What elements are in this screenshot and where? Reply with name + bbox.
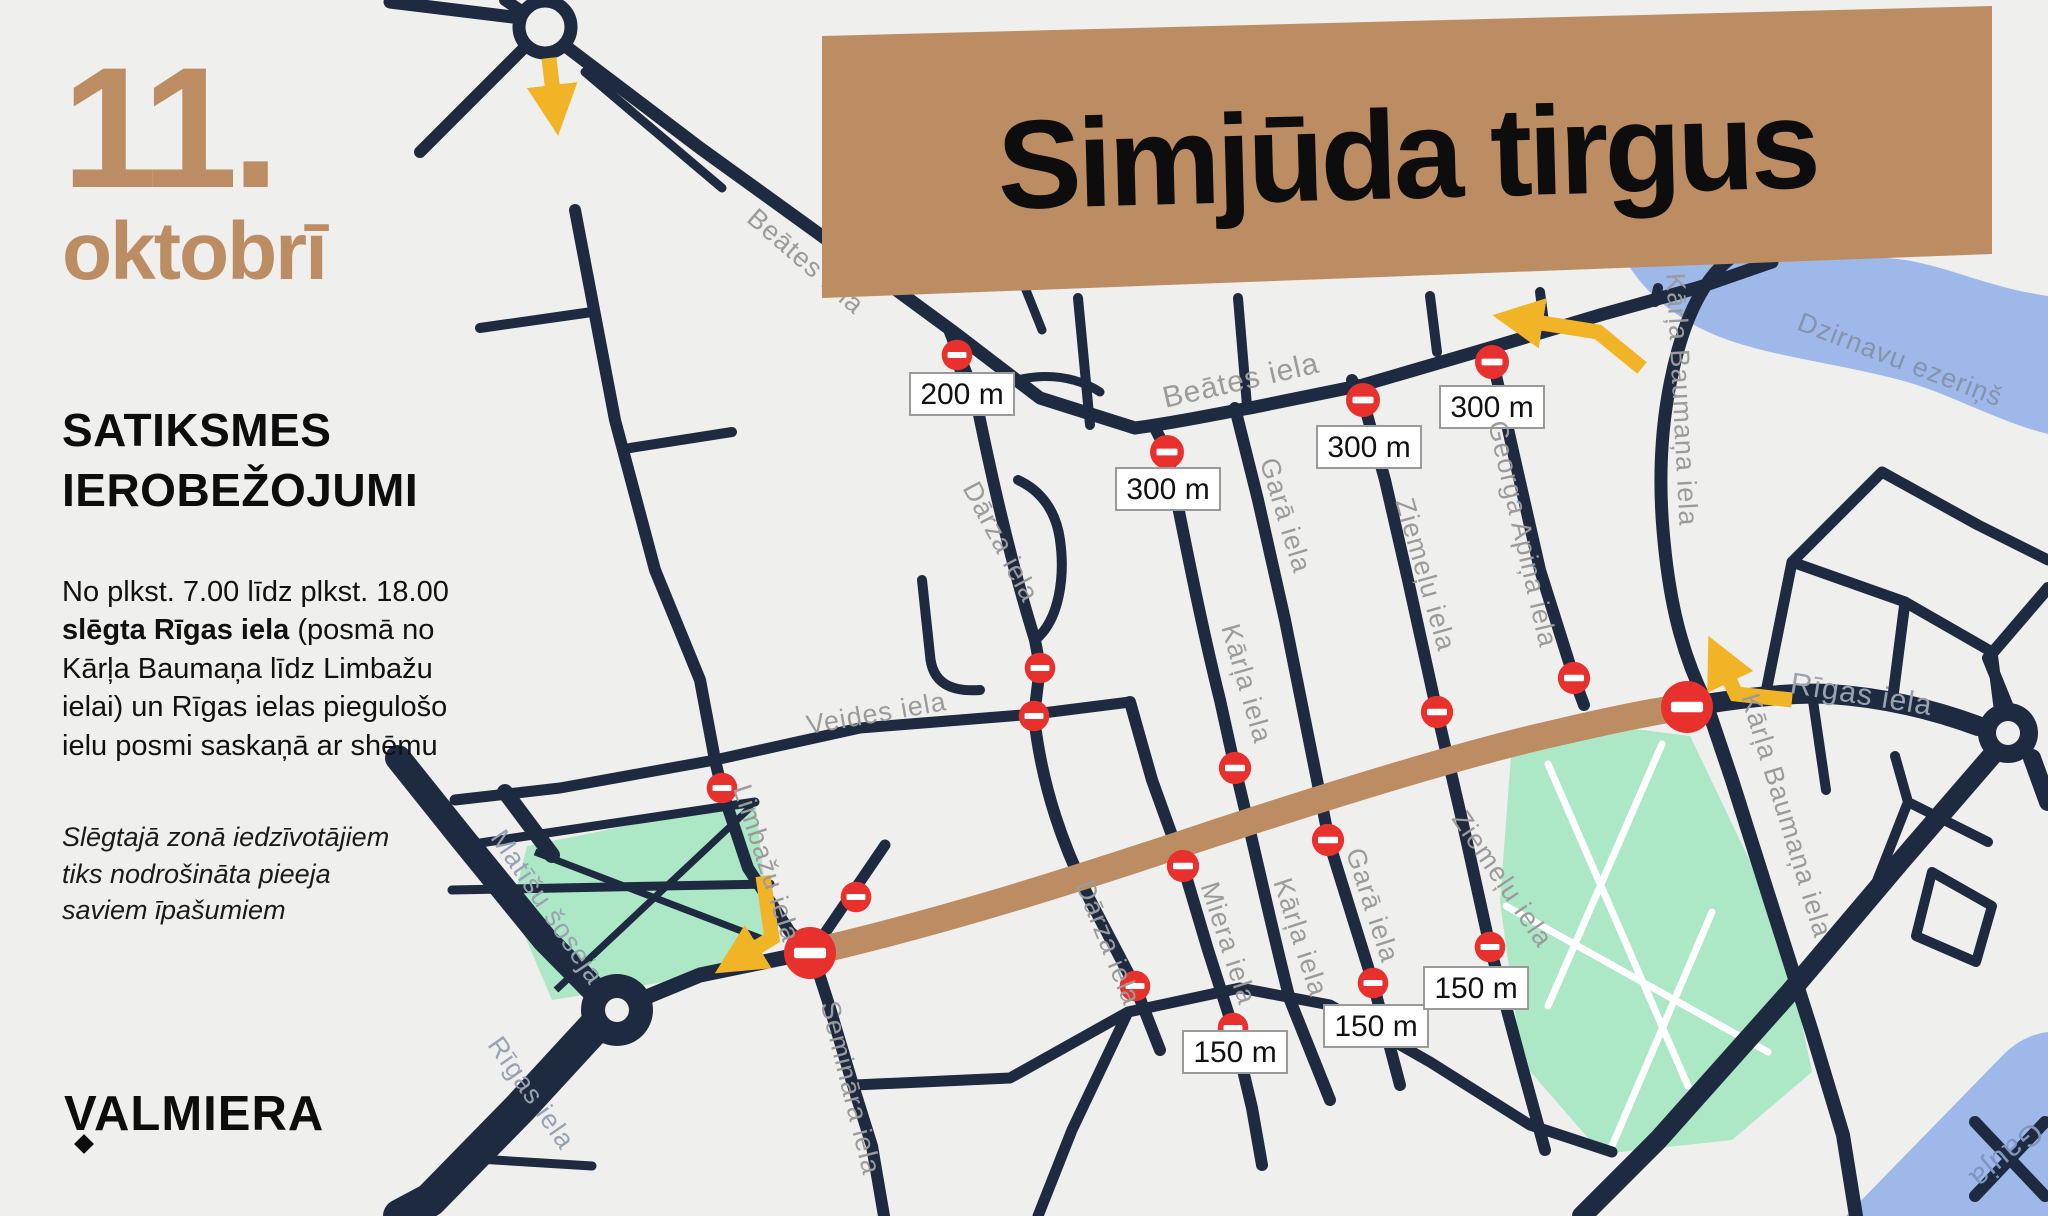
svg-text:300 m: 300 m <box>1327 431 1410 464</box>
date-day: 11. <box>62 58 502 199</box>
no-entry-sign-icon <box>1421 696 1453 728</box>
street-label: Dārza iela <box>1070 876 1147 1009</box>
no-entry-sign-icon <box>1025 653 1056 684</box>
restrictions-heading: SATIKSMES IEROBEŽOJUMI <box>62 401 502 521</box>
valmiera-logo: VALMIERA <box>64 1086 324 1142</box>
no-entry-sign-icon <box>1661 681 1713 733</box>
heading-line1: SATIKSMES <box>62 401 502 461</box>
no-entry-sign-icon <box>1019 701 1050 732</box>
no-entry-sign-icon <box>942 340 973 371</box>
body-text: No plkst. 7.00 līdz plkst. 18.00 <box>62 576 449 608</box>
restrictions-body: No plkst. 7.00 līdz plkst. 18.00 slēgta … <box>62 573 470 766</box>
poster: 200 m 300 m 300 m 300 m 150 m 150 m 150 … <box>0 0 2048 1216</box>
logo-text: VALMIERA <box>64 1087 324 1141</box>
no-entry-sign-icon <box>1358 968 1389 999</box>
detour-arrow-icon <box>549 58 556 118</box>
svg-text:300 m: 300 m <box>1126 473 1209 506</box>
svg-text:200 m: 200 m <box>920 378 1003 411</box>
access-note: Slēgtajā zonā iedzīvotājiem tiks nodroši… <box>62 819 402 928</box>
svg-text:150 m: 150 m <box>1334 1010 1417 1043</box>
svg-text:300 m: 300 m <box>1450 391 1533 424</box>
svg-text:150 m: 150 m <box>1434 972 1517 1005</box>
distance-badge: 300 m <box>1317 426 1421 468</box>
no-entry-sign-icon <box>1219 752 1251 784</box>
heading-line2: IEROBEŽOJUMI <box>62 461 502 521</box>
date-month: oktobrī <box>62 211 502 293</box>
no-entry-sign-icon <box>1558 662 1590 694</box>
detour-arrow-icon <box>1510 318 1642 368</box>
distance-badge: 200 m <box>910 373 1014 415</box>
body-text-bold: slēgta Rīgas iela <box>62 614 289 646</box>
river-gauja <box>1846 1032 2048 1216</box>
no-entry-sign-icon <box>841 882 872 913</box>
no-entry-sign-icon <box>1475 932 1506 963</box>
distance-badge: 150 m <box>1324 1005 1428 1047</box>
event-title: Simjūda tirgus <box>996 73 1819 235</box>
no-entry-sign-icon <box>1167 850 1199 882</box>
roundabout-north <box>519 1 571 53</box>
svg-text:150 m: 150 m <box>1193 1036 1276 1069</box>
street-label: Georga Apiņa iela <box>1482 418 1563 650</box>
street-label: Ziemeļu iela <box>1390 495 1462 655</box>
no-entry-sign-icon <box>1150 435 1184 469</box>
info-panel: 11. oktobrī SATIKSMES IEROBEŽOJUMI No pl… <box>62 58 502 929</box>
no-entry-sign-icon <box>1312 824 1344 856</box>
no-entry-sign-icon <box>1346 383 1380 417</box>
title-banner: Simjūda tirgus <box>822 6 1992 298</box>
roundabout-east <box>1978 703 2038 763</box>
distance-badge: 150 m <box>1183 1031 1287 1073</box>
no-entry-sign-icon <box>1475 345 1509 379</box>
distance-badge: 300 m <box>1116 468 1220 510</box>
distance-badge: 150 m <box>1424 967 1528 1009</box>
